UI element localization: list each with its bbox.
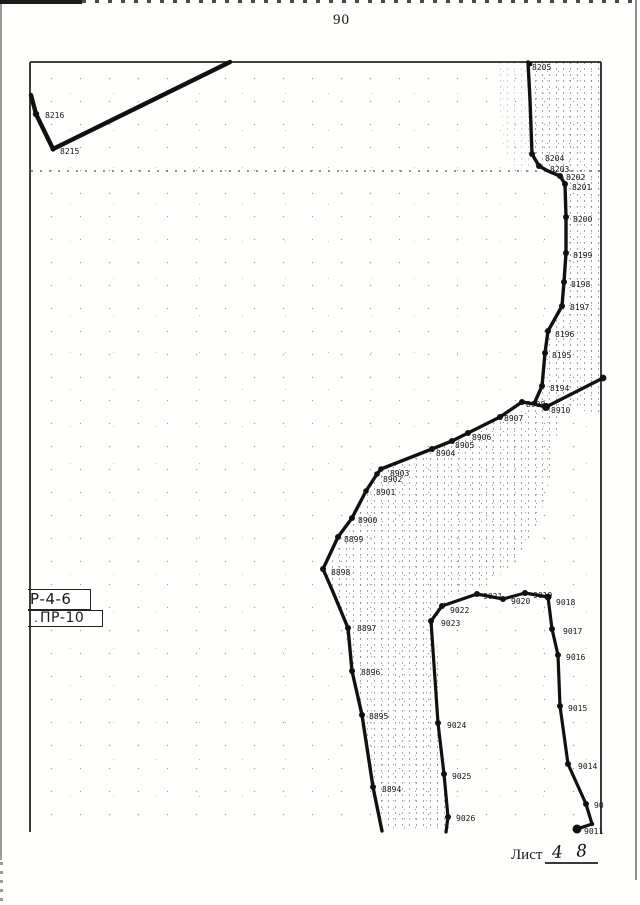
point-label-9022: 9022 [450,606,469,615]
point-label-8201: 8201 [572,183,591,192]
survey-point [359,712,365,718]
point-label-8906: 8906 [472,433,491,442]
boundary-line-8216-8215 [31,62,230,149]
survey-point [439,603,445,609]
survey-point [519,399,525,405]
survey-point [320,566,326,572]
point-label-8902: 8902 [383,475,402,484]
survey-point [50,146,55,151]
survey-point [542,403,550,411]
point-label-8195: 8195 [552,351,571,360]
survey-point [435,720,441,726]
point-label-8198: 8198 [571,280,590,289]
point-label-8905: 8905 [455,441,474,450]
point-label-9020: 9020 [511,597,530,606]
survey-point [33,111,39,117]
survey-point [528,62,533,67]
survey-point [429,446,435,452]
survey-point [583,801,589,807]
point-label-9015: 9015 [568,704,587,713]
page-number: 90 [333,12,350,29]
survey-point [428,618,434,624]
survey-point [374,471,380,477]
point-label-9023: 9023 [441,619,460,628]
survey-point [335,534,341,540]
point-label-8895: 8895 [369,712,388,721]
scan-edge-right [635,0,637,880]
point-label-8200: 8200 [573,215,592,224]
point-label-9016: 9016 [566,653,585,662]
sheet-number: 4 8 [552,841,592,863]
point-label-8216: 8216 [45,111,64,120]
boundary-line-9026-9011 [431,593,592,832]
point-label-8196: 8196 [555,330,574,339]
point-label-9025: 9025 [452,772,471,781]
survey-point [378,466,384,472]
survey-point [363,488,369,494]
point-label-8899: 8899 [344,535,363,544]
survey-point [349,515,355,521]
point-label-8897: 8897 [357,624,376,633]
survey-point [557,173,563,179]
point-label-8898: 8898 [331,568,350,577]
scan-edge-top-bar [0,0,82,4]
survey-point [545,594,552,601]
scan-edge-left-dashes [0,862,3,904]
survey-point [441,771,447,777]
survey-point [563,214,569,220]
point-label-9011: 9011 [584,827,603,836]
boundary-line-8205-8194 [528,62,566,404]
point-label-8204: 8204 [545,154,564,163]
point-label-8903: 8903 [390,469,409,478]
stipple-region-upper-right [0,0,640,905]
survey-point [549,626,555,632]
survey-point [474,591,480,597]
legend-box-pr10-prefix: . [34,611,38,626]
survey-point [562,181,568,187]
survey-point [590,822,594,826]
point-label-8199: 8199 [573,251,592,260]
point-label-9024: 9024 [447,721,466,730]
point-label-8202: 8202 [566,173,585,182]
survey-point [545,328,551,334]
point-label-90: 90 [594,801,604,810]
stipple-region-corridor [0,0,640,905]
sheet-caption: Лист [511,847,542,864]
point-label-8896: 8896 [361,668,380,677]
map-svg: 8216821582058204820382028201820081998198… [0,0,640,905]
survey-point [565,761,571,767]
survey-point [561,279,567,285]
boundary-line-8898-8894 [323,569,382,831]
scan-edge-top-dashes [82,0,632,3]
point-label-8907: 8907 [504,414,523,423]
legend-box-pr10: . ПР-10 [28,610,103,627]
point-label-9021: 9021 [483,592,502,601]
scan-edge-left [0,0,2,860]
point-label-9018: 9018 [556,598,575,607]
point-label-8901: 8901 [376,488,395,497]
point-label-8215: 8215 [60,147,79,156]
point-label-8894: 8894 [382,785,401,794]
point-label-8908: 8908 [526,400,545,409]
survey-point [555,652,561,658]
survey-point [370,784,376,790]
survey-point [557,703,563,709]
survey-point [563,250,569,256]
point-label-9019: 9019 [533,591,552,600]
point-label-8194: 8194 [550,384,569,393]
point-label-9026: 9026 [456,814,475,823]
survey-point [539,383,545,389]
survey-point [497,414,503,420]
point-label-9014: 9014 [578,762,597,771]
point-label-8900: 8900 [358,516,377,525]
survey-point [529,151,535,157]
point-label-8910: 8910 [551,406,570,415]
survey-point [345,625,351,631]
survey-point [573,825,582,834]
survey-point [542,350,548,356]
boundary-line-8898-8910-border [323,378,603,569]
point-label-9017: 9017 [563,627,582,636]
point-label-8205: 8205 [532,63,551,72]
legend-box-r46-label: Р-4-6 [30,590,71,608]
survey-point [600,375,607,382]
survey-point [536,163,542,169]
legend-box-pr10-label: ПР-10 [40,610,84,626]
scan-dotted-band [31,170,601,172]
stipple-region-top [0,0,640,905]
survey-point [559,303,565,309]
legend-box-r46: Р-4-6 [28,589,91,610]
survey-point [349,668,355,674]
survey-point [445,814,451,820]
survey-point [465,430,471,436]
scan-speckle-noise [30,62,601,832]
survey-point [522,590,528,596]
scanned-map-sheet: 90 Р-4-6 . ПР-10 Лист 4 8 82168215820582… [0,0,640,905]
survey-point [500,596,506,602]
point-label-8197: 8197 [570,303,589,312]
point-label-8904: 8904 [436,449,455,458]
survey-point [449,438,455,444]
